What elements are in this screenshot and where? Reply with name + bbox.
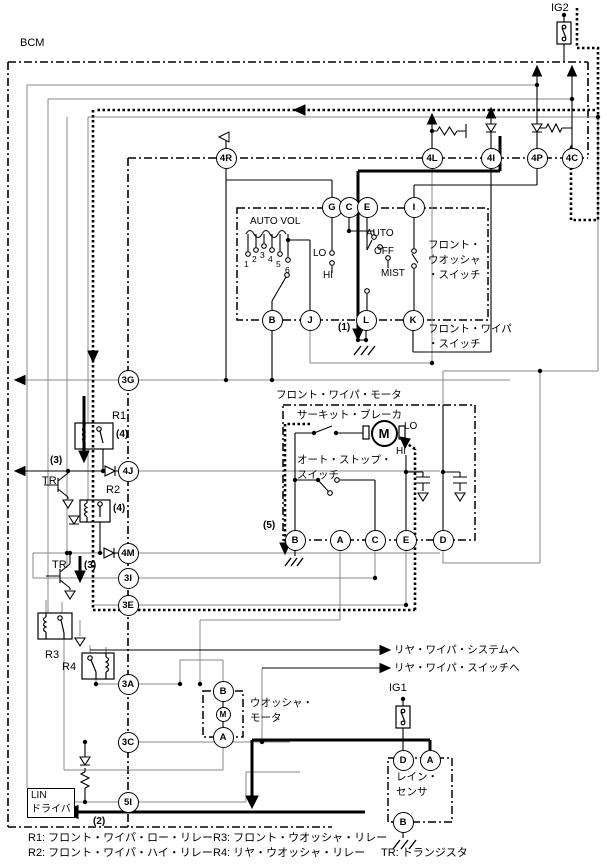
ref-4a: (4) xyxy=(116,429,128,440)
motor-hi-label: HI xyxy=(396,444,406,459)
relay-R3 xyxy=(38,613,72,639)
arrow-left-4J xyxy=(15,467,25,476)
relay-r1-label: R1 xyxy=(112,409,126,424)
legend-r3: R3: フロント・ウオッシャ・リレー xyxy=(213,831,387,846)
tr2-label: TR xyxy=(52,558,67,573)
arrow-down-thick3 xyxy=(246,796,258,808)
switch-auto-label: AUTO xyxy=(366,226,394,241)
arrow-left-3G xyxy=(15,376,25,385)
ref-5: (5) xyxy=(263,520,275,531)
motor-connector-A: A xyxy=(330,530,351,551)
connector-4L: 4L xyxy=(422,148,443,169)
washer-connector-B: B xyxy=(213,681,234,702)
connector-4R: 4R xyxy=(216,148,237,169)
switch-off-label: OFF xyxy=(374,244,394,259)
legend-r4: R4: リヤ・ウオッシャ・リレー xyxy=(213,846,365,861)
legend-r1: R1: フロント・ワイパ・ロー・リレー xyxy=(28,831,213,846)
arrow-down-dotted xyxy=(88,351,98,362)
connector-3A: 3A xyxy=(118,674,139,695)
auto-vol-label: AUTO VOL xyxy=(250,214,300,229)
zener-r2 xyxy=(69,516,79,524)
connector-B: B xyxy=(262,310,283,331)
connector-L: L xyxy=(356,310,377,331)
connector-E: E xyxy=(357,197,378,218)
arrow-left-dotted xyxy=(294,105,305,115)
wiper-motor-symbol: M xyxy=(371,420,398,447)
washer-motor-label: ウオッシャ・ モータ xyxy=(250,696,313,726)
motor-connector-C: C xyxy=(365,530,386,551)
ig1-label: IG1 xyxy=(389,681,407,696)
arrow-down-thick2 xyxy=(75,571,85,582)
ig2-fuse xyxy=(557,22,571,44)
front-wiper-switch-label: フロント・ワイパ ・スイッチ xyxy=(428,322,512,352)
signal-path-dotted xyxy=(93,8,598,610)
switch-lo-label: LO xyxy=(313,246,326,261)
switch-mist-label: MIST xyxy=(381,266,405,281)
ref-1: (1) xyxy=(338,322,350,333)
tr1-label: TR xyxy=(42,474,57,489)
legend-r2: R2: フロント・ワイパ・ハイ・リレー xyxy=(28,846,213,861)
pos-4: 4 xyxy=(268,255,273,264)
arrow-up-2 xyxy=(568,66,577,76)
ig1-fuse xyxy=(396,706,410,728)
connector-3I: 3I xyxy=(118,568,139,589)
connector-I: I xyxy=(404,197,425,218)
ref-4b: (4) xyxy=(113,503,125,514)
washer-connector-A: A xyxy=(213,727,234,748)
connector-K: K xyxy=(403,310,424,331)
relay-r2-label: R2 xyxy=(106,483,120,498)
arrow-up-4L xyxy=(428,114,437,124)
connector-5I: 5I xyxy=(118,792,139,813)
connector-4P: 4P xyxy=(527,148,548,169)
ig2-label: IG2 xyxy=(551,1,569,16)
pos-6: 6 xyxy=(285,266,290,275)
bcm-label: BCM xyxy=(20,36,44,51)
switch-hi-label: HI xyxy=(323,268,333,283)
motor-lo-label: LO xyxy=(404,419,417,434)
ref-2: (2) xyxy=(93,816,105,827)
arrow-up-1 xyxy=(533,66,542,76)
connector-4I: 4I xyxy=(481,148,502,169)
wiper-motor-title: フロント・ワイパ・モータ xyxy=(276,388,402,403)
connector-3E: 3E xyxy=(118,595,139,616)
zener-4I xyxy=(486,124,496,132)
diode-4M xyxy=(104,548,114,558)
relay-R4 xyxy=(82,653,114,679)
motor-connector-E: E xyxy=(396,530,417,551)
washer-motor-symbol: M xyxy=(216,707,231,722)
arrow-right-rear-switch xyxy=(380,664,390,673)
connector-3G: 3G xyxy=(118,370,139,391)
connector-3C: 3C xyxy=(118,732,139,753)
component-boxes xyxy=(203,208,488,822)
ref-3b: (3) xyxy=(84,560,96,571)
zener-lin xyxy=(80,757,90,765)
relay-R2 xyxy=(80,500,110,522)
relay-r3-label: R3 xyxy=(45,648,59,663)
pos-5: 5 xyxy=(276,260,281,269)
wiring-lines xyxy=(0,0,607,865)
to-rear-wiper-switch: リヤ・ワイパ・スイッチへ xyxy=(394,661,520,676)
relay-r4-label: R4 xyxy=(62,660,76,675)
connector-J: J xyxy=(300,310,321,331)
rain-connector-D: D xyxy=(393,750,414,771)
diode-4J xyxy=(105,466,115,476)
front-washer-switch-label: フロント・ ウオッシャ ・スイッチ xyxy=(428,238,481,283)
rain-sensor-label: レイン・ センサ xyxy=(396,770,438,800)
to-rear-wiper-system: リヤ・ワイパ・システムへ xyxy=(394,643,519,658)
arrow-right-rear-system xyxy=(380,646,390,655)
motor-connector-B: B xyxy=(285,530,306,551)
motor-connector-D: D xyxy=(433,530,454,551)
lin-driver-box: LIN ドライバ xyxy=(27,788,75,818)
ref-3a: (3) xyxy=(50,455,62,466)
pos-2: 2 xyxy=(252,255,257,264)
ground-motor xyxy=(285,558,303,566)
pos-1: 1 xyxy=(244,260,249,269)
connector-4M: 4M xyxy=(118,543,139,564)
connector-4C: 4C xyxy=(562,148,583,169)
rain-connector-B: B xyxy=(393,812,414,833)
rain-connector-A: A xyxy=(420,750,441,771)
ground-1 xyxy=(354,346,375,355)
arrow-hollow-4R xyxy=(219,132,229,142)
connector-4J: 4J xyxy=(118,461,139,482)
pos-3: 3 xyxy=(260,251,265,260)
auto-stop-switch-label: オート・ストップ・ スイッチ xyxy=(297,453,392,483)
wiring-diagram: BCM IG2 IG1 AUTO VOL 1 2 3 4 5 6 LO HI A… xyxy=(0,0,607,865)
legend-tr: TR: トランジスタ xyxy=(381,846,468,861)
